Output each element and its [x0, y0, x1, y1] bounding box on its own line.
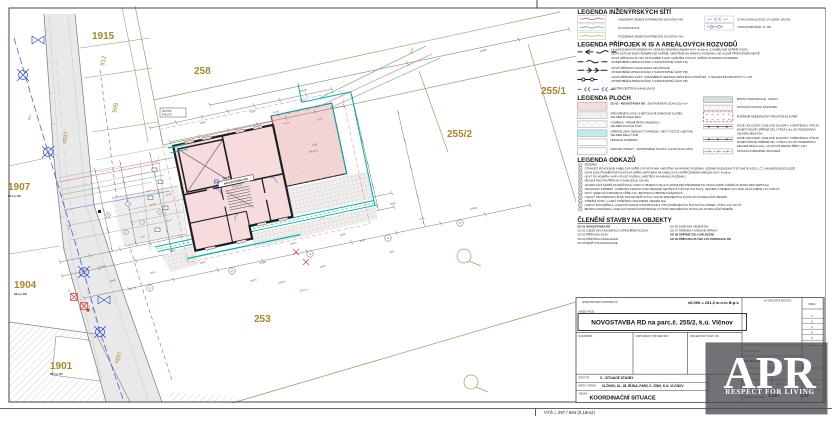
svg-text:1915: 1915 [92, 31, 115, 42]
svg-text:1907: 1907 [8, 182, 31, 193]
svg-text:255/1: 255/1 [541, 86, 566, 97]
svg-text:VÝŠ = 297 / 594 (0.18m2): VÝŠ = 297 / 594 (0.18m2) [544, 410, 595, 415]
svg-text:258: 258 [194, 66, 211, 77]
svg-text:SO 09 PŘÍPOJKA PLYNU A PLYNOF: SO 09 PŘÍPOJKA PLYNU A PLYNOFIKACE RD [670, 236, 731, 241]
svg-text:(PODROBNĚJI ZPRACOVÁNO V SAMOS: (PODROBNĚJI ZPRACOVÁNO V SAMOSTATNÉ ČÁST… [612, 78, 688, 83]
svg-text:CELKEM PLOCHA 98m²: CELKEM PLOCHA 98m² [611, 115, 642, 119]
svg-text:253: 253 [254, 314, 271, 325]
svg-text:AUTORIZAČNÍ RAZÍTKO:: AUTORIZAČNÍ RAZÍTKO: [764, 300, 792, 303]
svg-text:CELKEM DÉLKA 19m + PLOTOVÁ BRÁ: CELKEM DÉLKA 19m + PLOTOVÁ BRÁNA ŠÍŘKY 2… [737, 143, 808, 148]
svg-text:CELKEM DÉLKA 9m: CELKEM DÉLKA 9m [737, 131, 764, 136]
svg-text:REZERVA: REZERVA [585, 163, 598, 167]
svg-text:SO 05 DEŠŤOVÁ KANALIZACE: SO 05 DEŠŤOVÁ KANALIZACE [578, 240, 618, 245]
svg-text:STAVEBNÍK:: STAVEBNÍK: [579, 335, 594, 338]
svg-text:MÍSTNÍ KOMUNIKACE - ASFALT: MÍSTNÍ KOMUNIKACE - ASFALT [737, 97, 779, 101]
svg-text:(PODROBNĚJI ZPRACOVÁNO V SAMOS: (PODROBNĚJI ZPRACOVÁNO V SAMOSTATNÉ ČÁST… [612, 69, 688, 74]
svg-text:WWW.PROJEKTOVANIRD.CZ: WWW.PROJEKTOVANIRD.CZ [582, 300, 618, 304]
svg-text:PLYNOVOD STL: PLYNOVOD STL [618, 26, 640, 30]
svg-text:NOVOSTAVBA RD na parc.č. 255/2: NOVOSTAVBA RD na parc.č. 255/2, k.ú. Vlč… [591, 320, 733, 327]
svg-text:KOORDINAČNÍ SITUACE: KOORDINAČNÍ SITUACE [590, 394, 656, 402]
svg-text:RD č.p. 305: RD č.p. 305 [8, 195, 22, 198]
svg-text:VLČNOV, UL. 28. ŘÍJNA, PARC.Č.: VLČNOV, UL. 28. ŘÍJNA, PARC.Č. 255/2, K.… [602, 383, 684, 388]
svg-text:STOKA KANALIZACE, UV LINER, DN: STOKA KANALIZACE, UV LINER, DN 500 [737, 18, 790, 22]
svg-text:ODPOVĚDNÝ PROJEKTANT:: ODPOVĚDNÝ PROJEKTANT: [636, 335, 670, 338]
svg-text:HRANICE POZEMKU: HRANICE POZEMKU [611, 138, 638, 142]
svg-text:STÁVAJÍCÍ OKOLNÍ ZÁSTAVBA: STÁVAJÍCÍ OKOLNÍ ZÁSTAVBA [737, 105, 777, 109]
svg-text:VNITŘNÍ DEŠŤOVÁ KANALIZACE: VNITŘNÍ DEŠŤOVÁ KANALIZACE [612, 85, 656, 90]
svg-text:SO 01 - NOVOSTAVBA RD - ZASTAV: SO 01 - NOVOSTAVBA RD - ZASTAVĚNÁ PLOCHA… [611, 100, 688, 105]
svg-text:C - SITUACE STAVBY: C - SITUACE STAVBY [600, 376, 634, 380]
svg-text:ČÁST PD:: ČÁST PD: [579, 377, 591, 380]
svg-text:VODOVODNÍ ŘAD, LT 100: VODOVODNÍ ŘAD, LT 100 [737, 24, 771, 29]
svg-text:OBSAH:: OBSAH: [579, 392, 589, 395]
svg-text:CELKEM PLOCHA 5,6m²: CELKEM PLOCHA 5,6m² [611, 124, 643, 128]
svg-text:RESPECT FOR LIVING: RESPECT FOR LIVING [725, 388, 815, 396]
svg-text:DO PLASTOVÉ ELEKTROMĚROVÉ SKŘÍ: DO PLASTOVÉ ELEKTROMĚROVÉ SKŘÍNĚ, UMÍSTĚ… [612, 50, 760, 55]
svg-text:NADZEMNÍ VEDENÍ DISTRIBUČNÍ SO: NADZEMNÍ VEDENÍ DISTRIBUČNÍ SOUSTAVY NN [618, 17, 683, 22]
svg-text:POŽÁRNĚ NEBEZPEČNÝ PROSTOR DLE: POŽÁRNĚ NEBEZPEČNÝ PROSTOR DLE PBŘ [737, 113, 798, 118]
svg-text:1901: 1901 [50, 361, 73, 372]
svg-text:255/2: 255/2 [447, 129, 472, 140]
svg-text:NÁZEV AKCE:: NÁZEV AKCE: [579, 311, 596, 314]
svg-text:POKLOP: POKLOP [162, 114, 172, 117]
svg-text:(PODROBNĚJI ZPRACOVÁNO V SAMOS: (PODROBNĚJI ZPRACOVÁNO V SAMOSTATNÉ ČÁST… [612, 59, 688, 64]
svg-text:PROJEKTANT ČÁSTI PD:: PROJEKTANT ČÁSTI PD: [690, 335, 720, 338]
svg-text:MÍSTO STAVBY:: MÍSTO STAVBY: [579, 385, 598, 388]
svg-text:±0,000 = 231,3 m.n.m B.p.v.: ±0,000 = 231,3 m.n.m B.p.v. [688, 300, 739, 305]
svg-text:STÁVAJÍCÍ DŘEVĚNÉ OPLOCENÍ: STÁVAJÍCÍ DŘEVĚNÉ OPLOCENÍ [737, 148, 781, 153]
svg-text:RD č.p. 367: RD č.p. 367 [50, 373, 64, 376]
svg-text:PODZEMNÍ VEDENÍ DISTRIBUČNÍ SO: PODZEMNÍ VEDENÍ DISTRIBUČNÍ SOUSTAVY NN [618, 34, 683, 39]
svg-text:RD č.p. 356: RD č.p. 356 [14, 293, 28, 296]
svg-text:LEGENDA INŽENÝRSKÝCH SÍTÍ: LEGENDA INŽENÝRSKÝCH SÍTÍ [577, 8, 671, 16]
svg-text:CELKEM DÉLKY 50M: CELKEM DÉLKY 50M [611, 132, 639, 137]
svg-text:ČLENĚNÍ STAVBY NA OBJEKTY: ČLENĚNÍ STAVBY NA OBJEKTY [577, 216, 672, 224]
svg-text:1904: 1904 [14, 280, 37, 291]
svg-text:SADOVÉ ÚPRAVY - ZATRAVNĚNÉ PLO: SADOVÉ ÚPRAVY - ZATRAVNĚNÉ PLOCHY cca PL… [611, 146, 694, 151]
